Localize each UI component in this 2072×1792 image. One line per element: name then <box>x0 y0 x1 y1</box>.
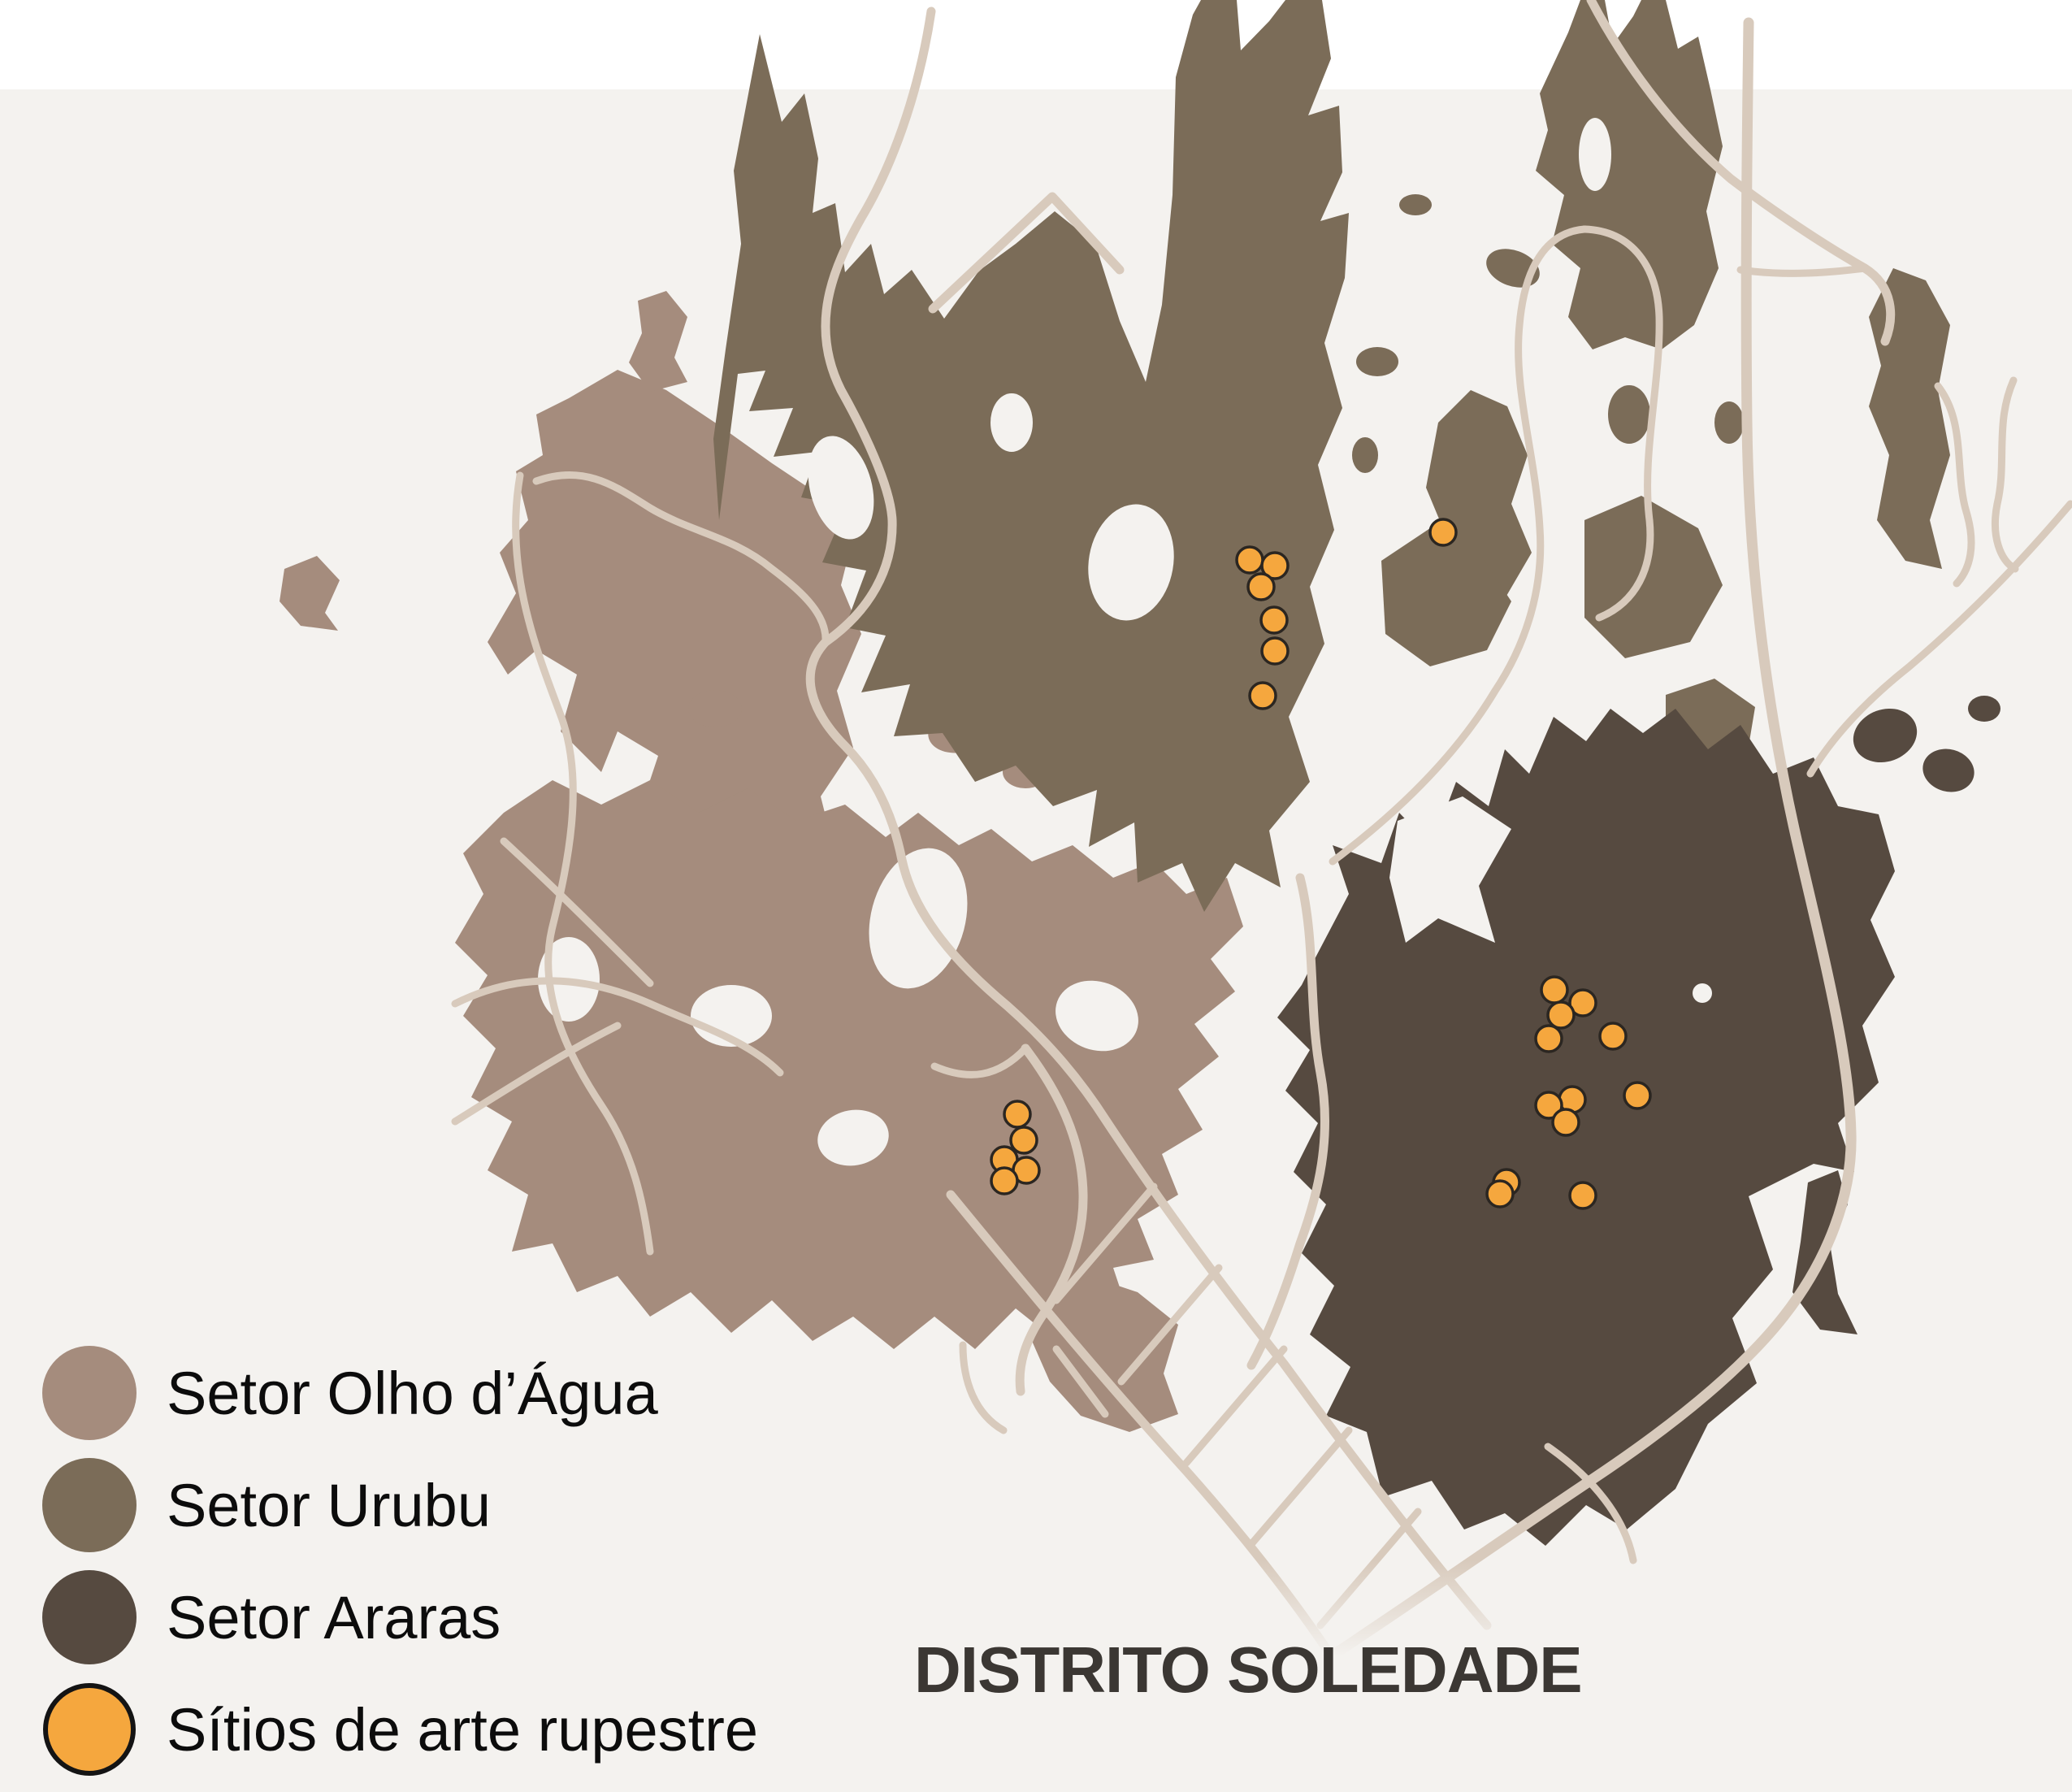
rock-art-site-marker-urubu <box>1430 519 1456 545</box>
rock-art-site-marker-araras <box>1600 1023 1626 1049</box>
rock-art-site-marker-araras <box>1570 1182 1596 1208</box>
legend-item-urubu: Setor Urubu <box>42 1458 491 1552</box>
legend-label-olho: Setor Olho d’Água <box>167 1360 659 1427</box>
legend-label-araras: Setor Araras <box>167 1584 501 1651</box>
rock-art-site-marker-olho <box>1011 1127 1037 1153</box>
rock-art-site-marker-urubu <box>1248 574 1274 600</box>
rock-art-site-marker-araras <box>1487 1181 1513 1207</box>
rock-art-site-marker-olho <box>991 1168 1017 1194</box>
urubu-scatter <box>1714 401 1744 444</box>
urubu-scatter <box>1399 194 1432 215</box>
rock-art-site-marker-araras <box>1541 977 1567 1003</box>
rock-art-site-marker-araras <box>1536 1026 1562 1052</box>
rock-art-site-marker-olho <box>1004 1101 1030 1127</box>
araras-scatter <box>1653 1263 1672 1286</box>
map-figure: DISTRITO SOLEDADE Setor Olho d’Água Seto… <box>0 0 2072 1792</box>
olho-scatter <box>688 690 742 727</box>
legend-swatch-araras <box>42 1570 137 1664</box>
araras-scatter <box>1675 1315 1692 1338</box>
top-white-band <box>0 0 2072 89</box>
legend-swatch-olho <box>42 1346 137 1440</box>
rock-art-site-marker-araras <box>1553 1109 1579 1135</box>
terrain-hole <box>1693 983 1712 1003</box>
rock-art-site-marker-urubu <box>1261 607 1287 633</box>
rock-art-site-marker-araras <box>1548 1002 1574 1028</box>
district-title: DISTRITO SOLEDADE <box>914 1634 1582 1706</box>
terrain-hole <box>1579 118 1611 191</box>
urubu-scatter <box>1352 437 1378 473</box>
terrain-hole <box>990 393 1033 452</box>
district-map-svg: DISTRITO SOLEDADE Setor Olho d’Água Seto… <box>0 0 2072 1792</box>
rock-art-site-marker-araras <box>1624 1083 1650 1109</box>
legend-label-urubu: Setor Urubu <box>167 1472 491 1539</box>
urubu-scatter <box>1356 347 1398 376</box>
legend-label-rock-art-sites: Sítios de arte rupestre <box>167 1696 758 1764</box>
legend-swatch-rock-art-sites <box>46 1686 133 1773</box>
araras-scatter <box>1968 696 2000 722</box>
urubu-scatter <box>1608 385 1650 444</box>
rock-art-site-marker-urubu <box>1237 547 1263 573</box>
legend-item-araras: Setor Araras <box>42 1570 501 1664</box>
rock-art-site-marker-urubu <box>1250 683 1276 709</box>
legend-swatch-urubu <box>42 1458 137 1552</box>
rock-art-site-marker-urubu <box>1262 638 1288 664</box>
